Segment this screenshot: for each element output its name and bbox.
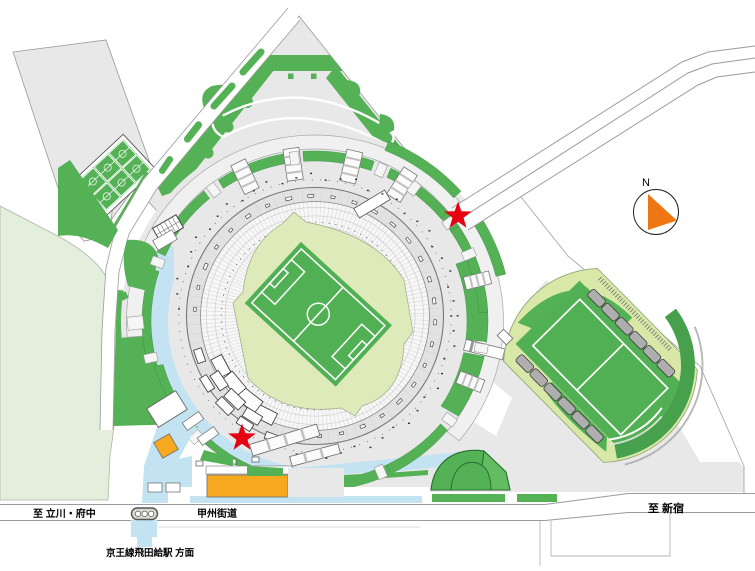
svg-text:京王線飛田給駅 方面: 京王線飛田給駅 方面 [106, 547, 195, 559]
svg-text:至 立川・府中: 至 立川・府中 [33, 507, 96, 520]
svg-text:甲州街道: 甲州街道 [197, 507, 237, 520]
svg-text:N: N [642, 177, 650, 189]
svg-text:至 新宿: 至 新宿 [648, 501, 684, 515]
